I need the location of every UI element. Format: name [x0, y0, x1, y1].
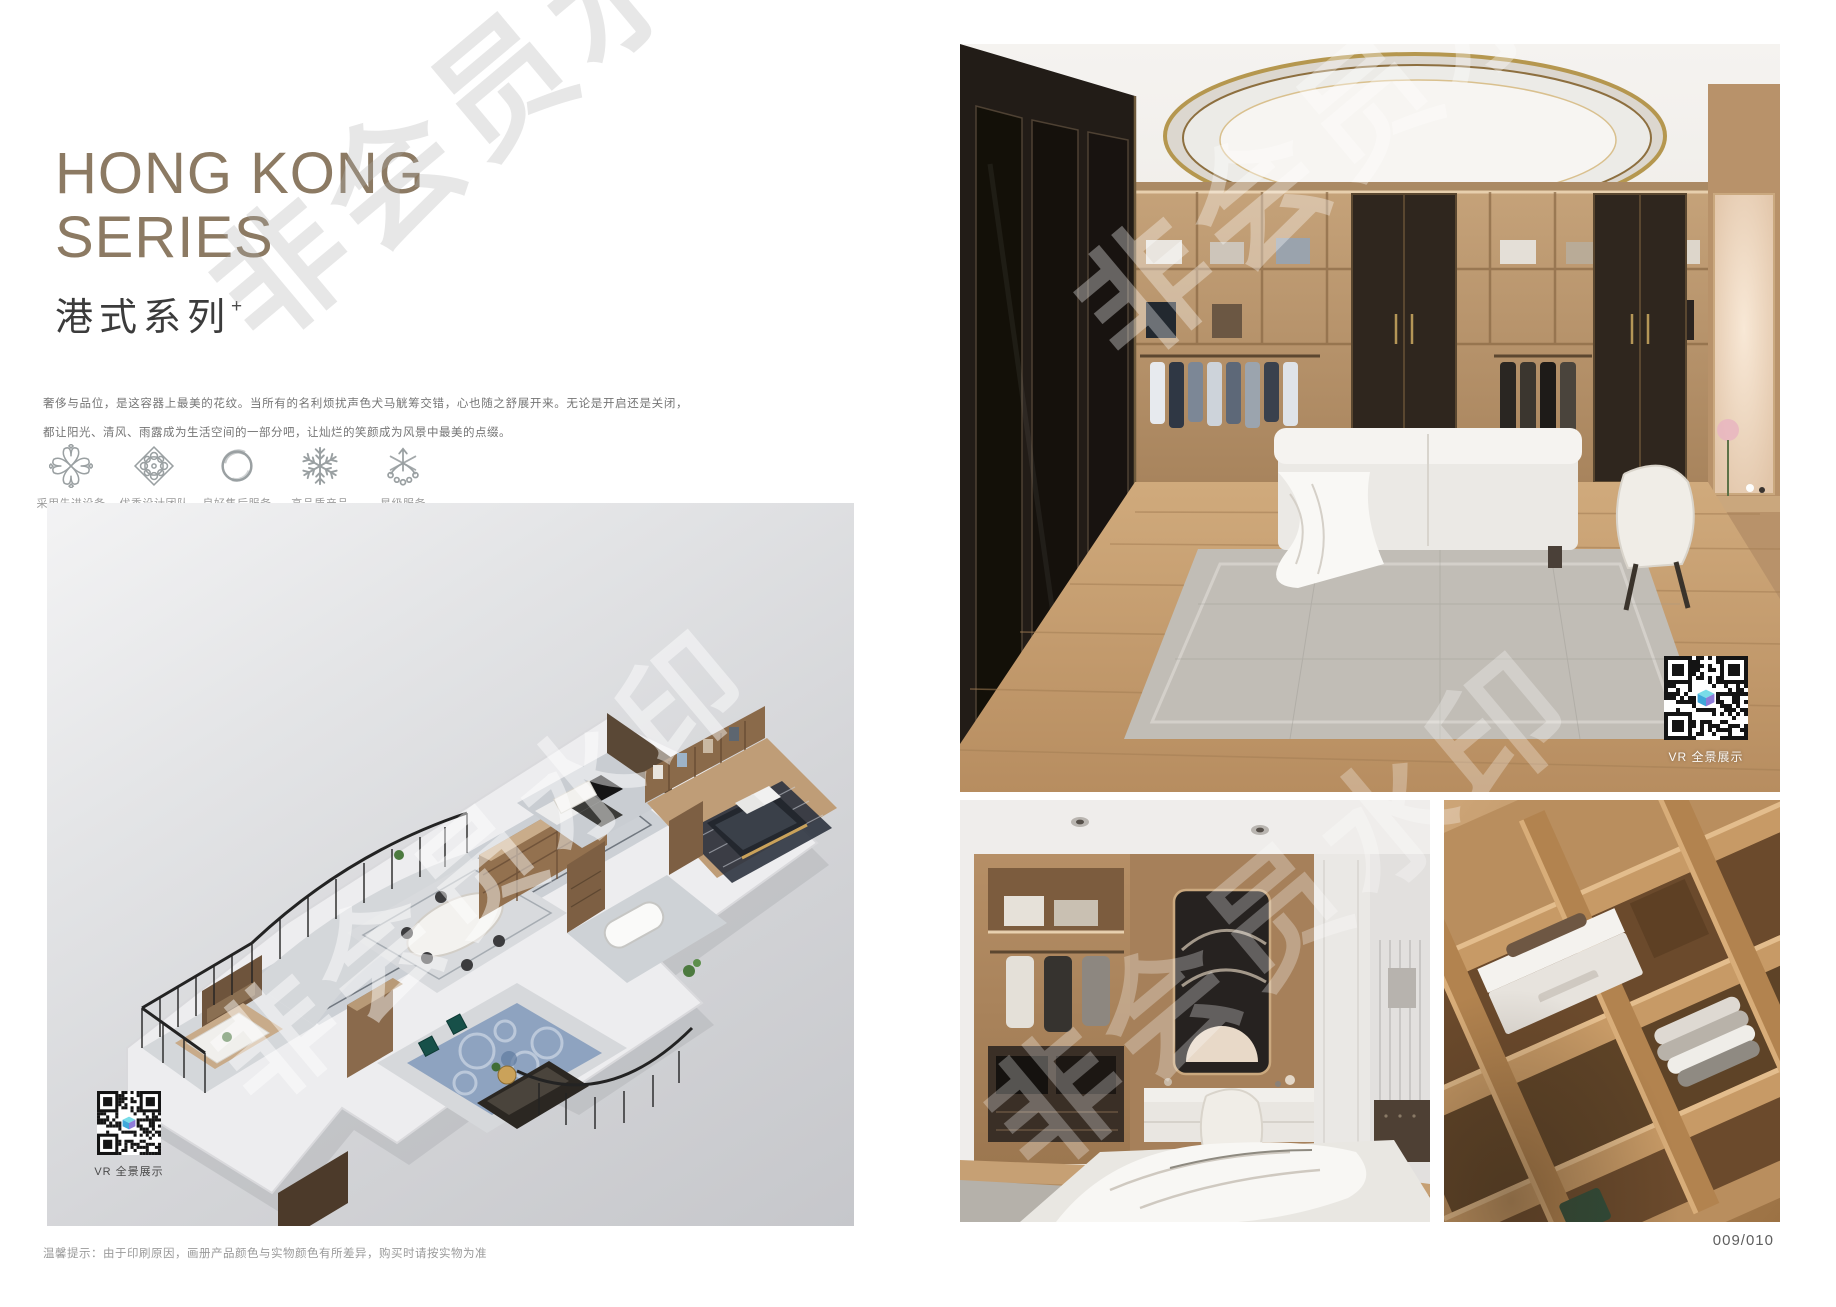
series-title-en-line2: SERIES — [55, 206, 425, 270]
snowflake-icon — [298, 444, 342, 488]
vr-label: VR 全景展示 — [94, 1163, 163, 1179]
shelf-closeup-photo — [1444, 800, 1780, 1222]
vr-label: VR 全景展示 — [1668, 748, 1743, 765]
page-number: 009/010 — [1690, 1232, 1774, 1249]
series-title-plus: + — [231, 296, 242, 317]
feature-advanced-equipment: 采用先进设备 — [38, 444, 104, 511]
walkin-closet-render — [960, 44, 1780, 792]
floorplan-panel: VR 全景展示 — [47, 503, 854, 1226]
walkin-closet-photo: VR 全景展示 — [960, 44, 1780, 792]
closet-vr-qr: VR 全景展示 — [1660, 656, 1752, 765]
series-description: 奢侈与品位，是这容器上最美的花纹。当所有的名利烦扰声色犬马觥筹交错，心也随之舒展… — [43, 390, 688, 448]
feature-quality-product: 高品质产品 — [287, 444, 353, 511]
feature-design-team: 优秀设计团队 — [121, 444, 187, 511]
ring-icon — [215, 444, 259, 488]
feature-star-service: 星级服务 — [370, 444, 436, 511]
series-title-block: HONG KONG SERIES 港式系列+ — [55, 142, 425, 341]
area-rug — [1124, 549, 1708, 739]
qr-code — [97, 1091, 161, 1155]
floorplan-vr-qr: VR 全景展示 — [79, 1091, 179, 1179]
print-disclaimer: 温馨提示：由于印刷原因，画册产品颜色与实物颜色有所差异，购买时请按实物为准 — [43, 1245, 487, 1261]
star-icon — [381, 444, 425, 488]
shelf-closeup-render — [1444, 800, 1780, 1222]
pinwheel-icon — [49, 444, 93, 488]
series-title-cn-text: 港式系列 — [55, 297, 231, 339]
dressing-area-render — [960, 800, 1430, 1222]
qr-code — [1664, 656, 1748, 740]
series-title-cn: 港式系列+ — [55, 286, 425, 341]
catalog-spread: HONG KONG SERIES 港式系列+ 奢侈与品位，是这容器上最美的花纹。… — [0, 0, 1836, 1307]
feature-after-sales: 良好售后服务 — [204, 444, 270, 511]
dressing-area-photo — [960, 800, 1430, 1222]
feature-row: 采用先进设备 优秀设计团队 良好售后服务 — [38, 444, 453, 511]
rosette-icon — [132, 444, 176, 488]
series-title-en-line1: HONG KONG — [55, 142, 425, 206]
